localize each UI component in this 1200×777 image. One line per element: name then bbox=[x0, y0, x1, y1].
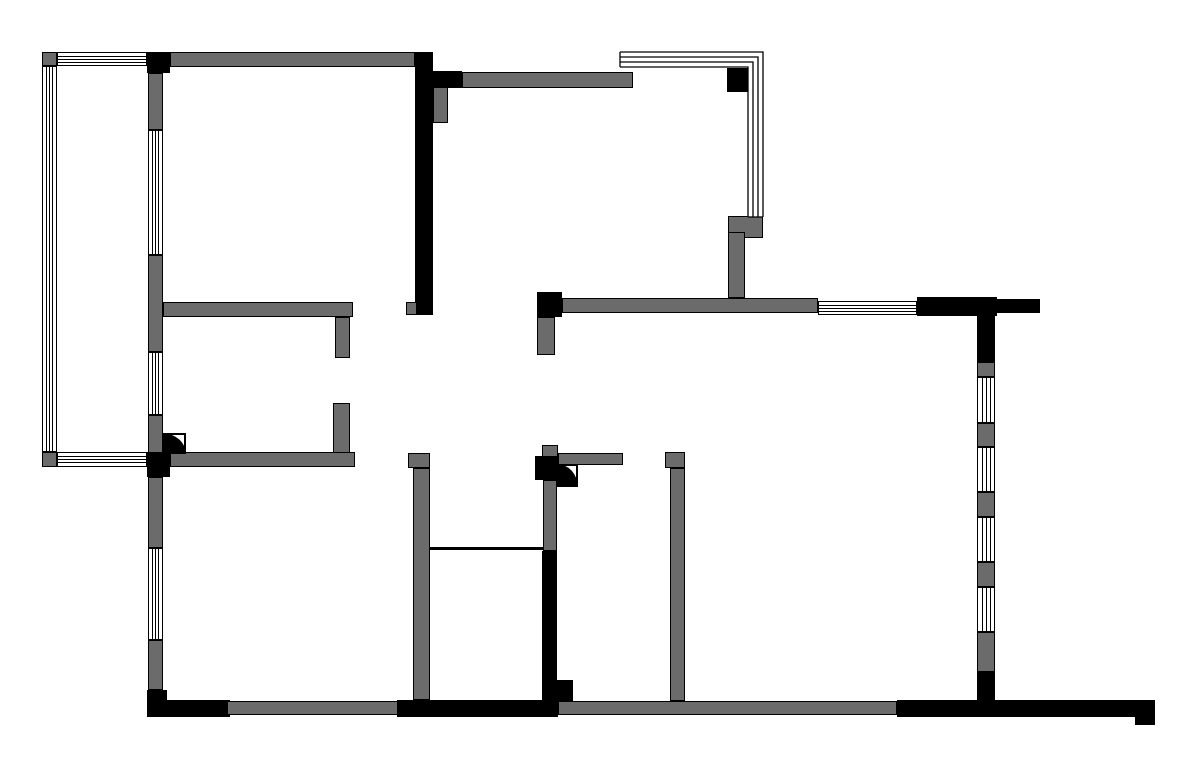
symbols-overlay bbox=[0, 0, 1200, 777]
bath-left-wall bbox=[413, 468, 430, 700]
window-pane-line bbox=[819, 308, 916, 309]
kitchen-top-wall bbox=[462, 72, 633, 88]
bottom-wall-gray1 bbox=[227, 701, 399, 715]
window-pane-line bbox=[49, 67, 50, 451]
balcony-window-top bbox=[57, 52, 147, 66]
window-pane-line bbox=[982, 378, 983, 422]
window-pane-line bbox=[986, 378, 987, 422]
balcony-window-left bbox=[42, 66, 57, 452]
left-wall-seg2 bbox=[148, 255, 163, 352]
window-pane-line bbox=[46, 67, 47, 451]
window-pane-line bbox=[986, 448, 987, 491]
right-window1 bbox=[977, 377, 995, 423]
window-pane-line bbox=[819, 305, 916, 306]
window-pane-line bbox=[982, 588, 983, 631]
kitchen-column bbox=[433, 87, 448, 123]
window-pane-line bbox=[58, 456, 146, 457]
kitchen-right-wall bbox=[728, 232, 745, 298]
right-window2 bbox=[977, 447, 995, 492]
balcony-corner-top bbox=[42, 52, 57, 66]
bedroom2-left-wall bbox=[670, 468, 685, 701]
bottom-wall-hook bbox=[1135, 715, 1155, 725]
room2-wall-stub bbox=[333, 403, 350, 453]
top-wall-junction-black bbox=[147, 52, 170, 73]
left-wall-seg3 bbox=[148, 415, 163, 453]
window-pane-line bbox=[990, 518, 991, 561]
window-pane-line bbox=[155, 131, 156, 254]
hall-wall-arm bbox=[558, 453, 623, 465]
top-right-wall-black bbox=[917, 297, 997, 316]
window-pane-line bbox=[52, 67, 53, 451]
window-pane-line bbox=[990, 448, 991, 491]
window-pane-line bbox=[152, 549, 153, 639]
window-pane-line bbox=[158, 549, 159, 639]
window-pane-line bbox=[58, 56, 146, 57]
left-junction-black bbox=[147, 452, 170, 477]
room3-window bbox=[148, 548, 163, 640]
bath-right-wall-black bbox=[542, 551, 557, 701]
top-right-wall-stub bbox=[997, 299, 1040, 313]
bedroom2-left-wall-cap bbox=[665, 452, 685, 468]
right-wall-seg7 bbox=[977, 672, 995, 702]
window-pane-line bbox=[986, 518, 987, 561]
right-wall-seg1 bbox=[977, 316, 995, 362]
window-pane-line bbox=[58, 459, 146, 460]
bedroom1-bottom-wall bbox=[163, 302, 353, 317]
room2-bottom-wall bbox=[170, 452, 355, 467]
window-pane-line bbox=[158, 353, 159, 414]
center-wall-notch bbox=[406, 302, 417, 315]
corner-window-column bbox=[727, 68, 748, 92]
living-top-wall bbox=[562, 298, 818, 313]
room2-door-frame bbox=[163, 434, 185, 453]
window-pane-line bbox=[819, 311, 916, 312]
window-pane-line bbox=[158, 131, 159, 254]
window-pane-line bbox=[982, 448, 983, 491]
window-pane-line bbox=[58, 59, 146, 60]
bath-door-frame bbox=[558, 465, 577, 486]
bath-right-junction bbox=[535, 456, 558, 480]
bottom-wall-black3 bbox=[897, 700, 1155, 717]
bath-right-wall-gray bbox=[543, 480, 557, 551]
living-top-stub bbox=[537, 317, 555, 355]
bottom-wall-black1 bbox=[160, 700, 230, 717]
right-wall-seg4 bbox=[977, 492, 995, 517]
bottom-wall-black2 bbox=[397, 700, 558, 717]
window-pane-line bbox=[152, 353, 153, 414]
left-wall-seg1 bbox=[148, 73, 163, 130]
bath-door bbox=[558, 465, 577, 486]
window-pane-line bbox=[155, 353, 156, 414]
right-wall-seg2 bbox=[977, 362, 995, 377]
left-wall-seg4 bbox=[148, 477, 163, 548]
right-window4 bbox=[977, 587, 995, 632]
top-wall bbox=[170, 52, 415, 67]
top-right-window bbox=[818, 301, 917, 315]
window-pane-line bbox=[58, 62, 146, 63]
right-wall-seg6 bbox=[977, 632, 995, 672]
bedroom1-wall-stub bbox=[335, 317, 350, 358]
window-pane-line bbox=[982, 518, 983, 561]
room2-window bbox=[148, 352, 163, 415]
bedroom1-window bbox=[148, 130, 163, 255]
window-pane-line bbox=[990, 588, 991, 631]
bath-right-wall-step bbox=[557, 680, 573, 701]
bath-divider-line bbox=[430, 547, 543, 550]
bottom-wall-gray2 bbox=[558, 701, 897, 715]
window-pane-line bbox=[58, 462, 146, 463]
bath-left-wall-cap bbox=[408, 453, 430, 468]
left-wall-seg5 bbox=[148, 640, 163, 690]
window-pane-line bbox=[986, 588, 987, 631]
right-window3 bbox=[977, 517, 995, 562]
living-top-junction bbox=[537, 292, 562, 317]
center-black-wall bbox=[415, 52, 433, 315]
room2-door bbox=[163, 434, 185, 453]
balcony-window-bottom bbox=[57, 452, 147, 467]
window-pane-line bbox=[990, 378, 991, 422]
window-pane-line bbox=[152, 131, 153, 254]
right-wall-seg5 bbox=[977, 562, 995, 587]
window-pane-line bbox=[155, 549, 156, 639]
floor-plan-canvas bbox=[0, 0, 1200, 777]
kitchen-top-wall-black bbox=[433, 71, 462, 88]
balcony-corner-bottom bbox=[42, 452, 57, 467]
right-wall-seg3 bbox=[977, 423, 995, 447]
